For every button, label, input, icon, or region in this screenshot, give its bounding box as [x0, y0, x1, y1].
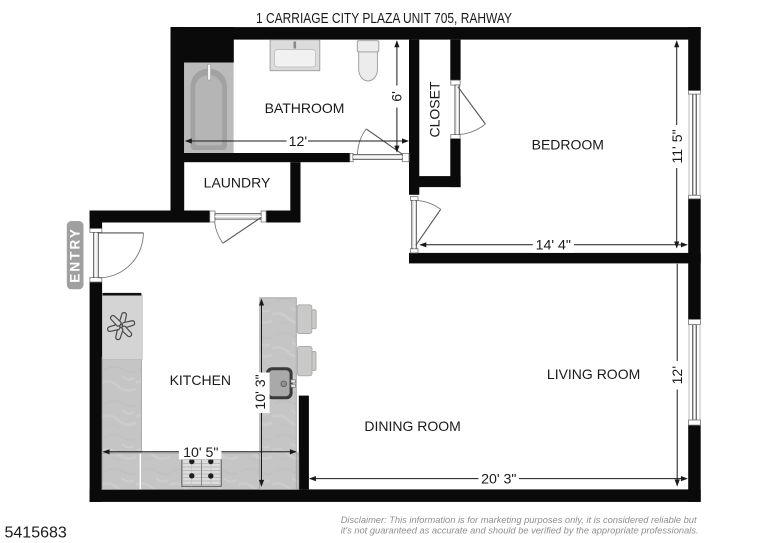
svg-text:BATHROOM: BATHROOM	[265, 100, 345, 116]
svg-text:LIVING ROOM: LIVING ROOM	[547, 366, 640, 382]
svg-text:11' 5": 11' 5"	[670, 129, 686, 163]
svg-text:KITCHEN: KITCHEN	[170, 372, 231, 388]
svg-text:14' 4": 14' 4"	[536, 238, 571, 254]
svg-text:BEDROOM: BEDROOM	[532, 136, 604, 152]
svg-text:1 CARRIAGE CITY PLAZA UNIT 705: 1 CARRIAGE CITY PLAZA UNIT 705, RAHWAY	[256, 11, 512, 27]
svg-text:10' 5": 10' 5"	[183, 445, 218, 461]
svg-text:5415683: 5415683	[5, 524, 67, 541]
svg-text:Disclaimer: This information i: Disclaimer: This information is for mark…	[341, 515, 697, 525]
svg-text:ENTRY: ENTRY	[68, 227, 83, 283]
svg-text:CLOSET: CLOSET	[427, 81, 443, 137]
svg-text:it's not guaranteed as accurat: it's not guaranteed as accurate and shou…	[341, 526, 699, 536]
svg-text:12': 12'	[670, 366, 686, 385]
svg-text:10' 3": 10' 3"	[253, 374, 269, 409]
svg-text:12': 12'	[289, 134, 308, 150]
svg-text:DINING ROOM: DINING ROOM	[364, 418, 460, 434]
svg-text:LAUNDRY: LAUNDRY	[204, 175, 271, 191]
svg-text:20' 3": 20' 3"	[481, 472, 516, 488]
svg-text:6': 6'	[389, 91, 405, 102]
